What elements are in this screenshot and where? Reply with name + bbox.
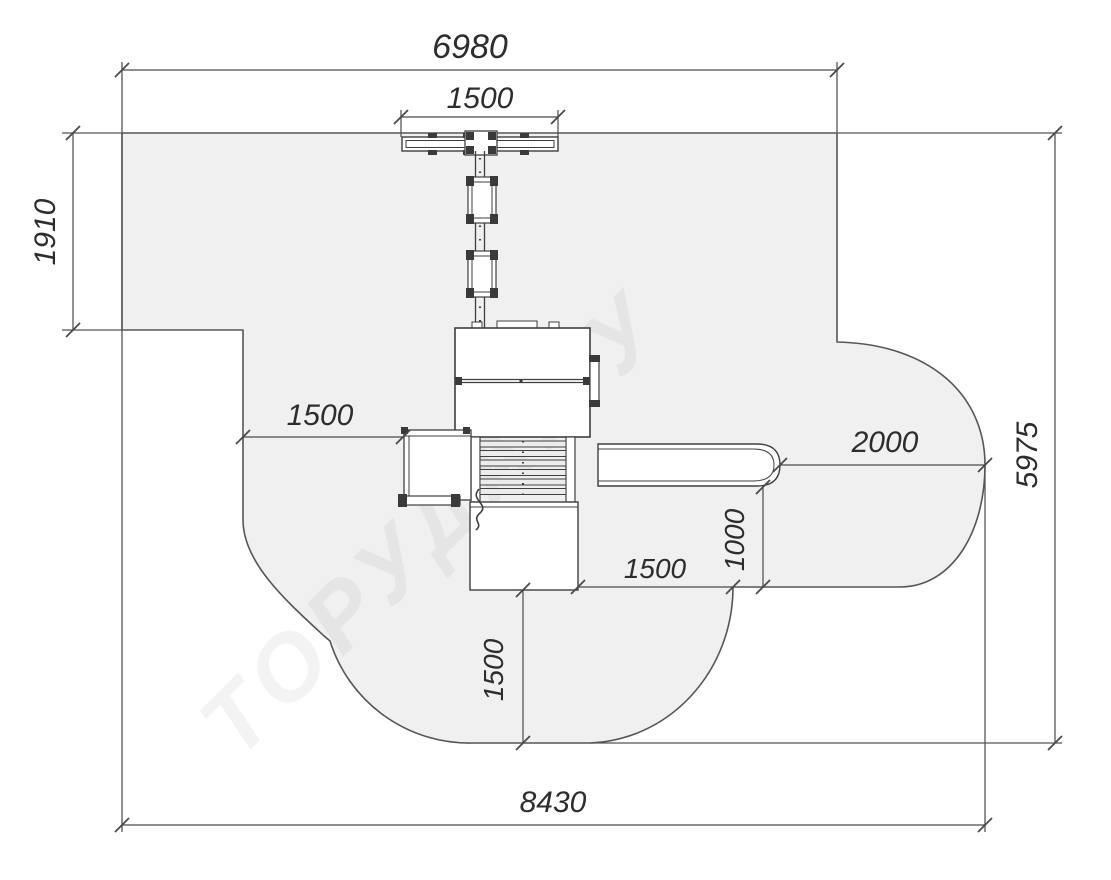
- tower-platform: [455, 321, 600, 437]
- dim-label-upper-left-height: 1910: [29, 198, 62, 265]
- swing-seat: [466, 176, 498, 224]
- dim-label-mid-clearance: 1500: [624, 553, 687, 584]
- dim-label-bottom-total: 8430: [520, 786, 587, 819]
- front-panel: [470, 489, 578, 590]
- dim-label-top-total: 6980: [432, 28, 508, 66]
- dim-label-swing-beam: 1500: [447, 82, 514, 115]
- side-platform: [398, 427, 471, 507]
- ladder: [471, 437, 575, 502]
- technical-drawing-playground-safety-zone: ТОРУДА.РУ: [0, 0, 1111, 880]
- dim-label-right-height: 5975: [1011, 421, 1044, 488]
- dim-label-left-clearance: 1500: [287, 399, 354, 432]
- dim-label-exit-depth: 1000: [719, 508, 750, 571]
- dim-label-slide-runout: 2000: [851, 426, 919, 459]
- dim-label-bottom-clearance: 1500: [478, 638, 509, 701]
- slide: [598, 444, 780, 486]
- swing-seat: [466, 250, 498, 298]
